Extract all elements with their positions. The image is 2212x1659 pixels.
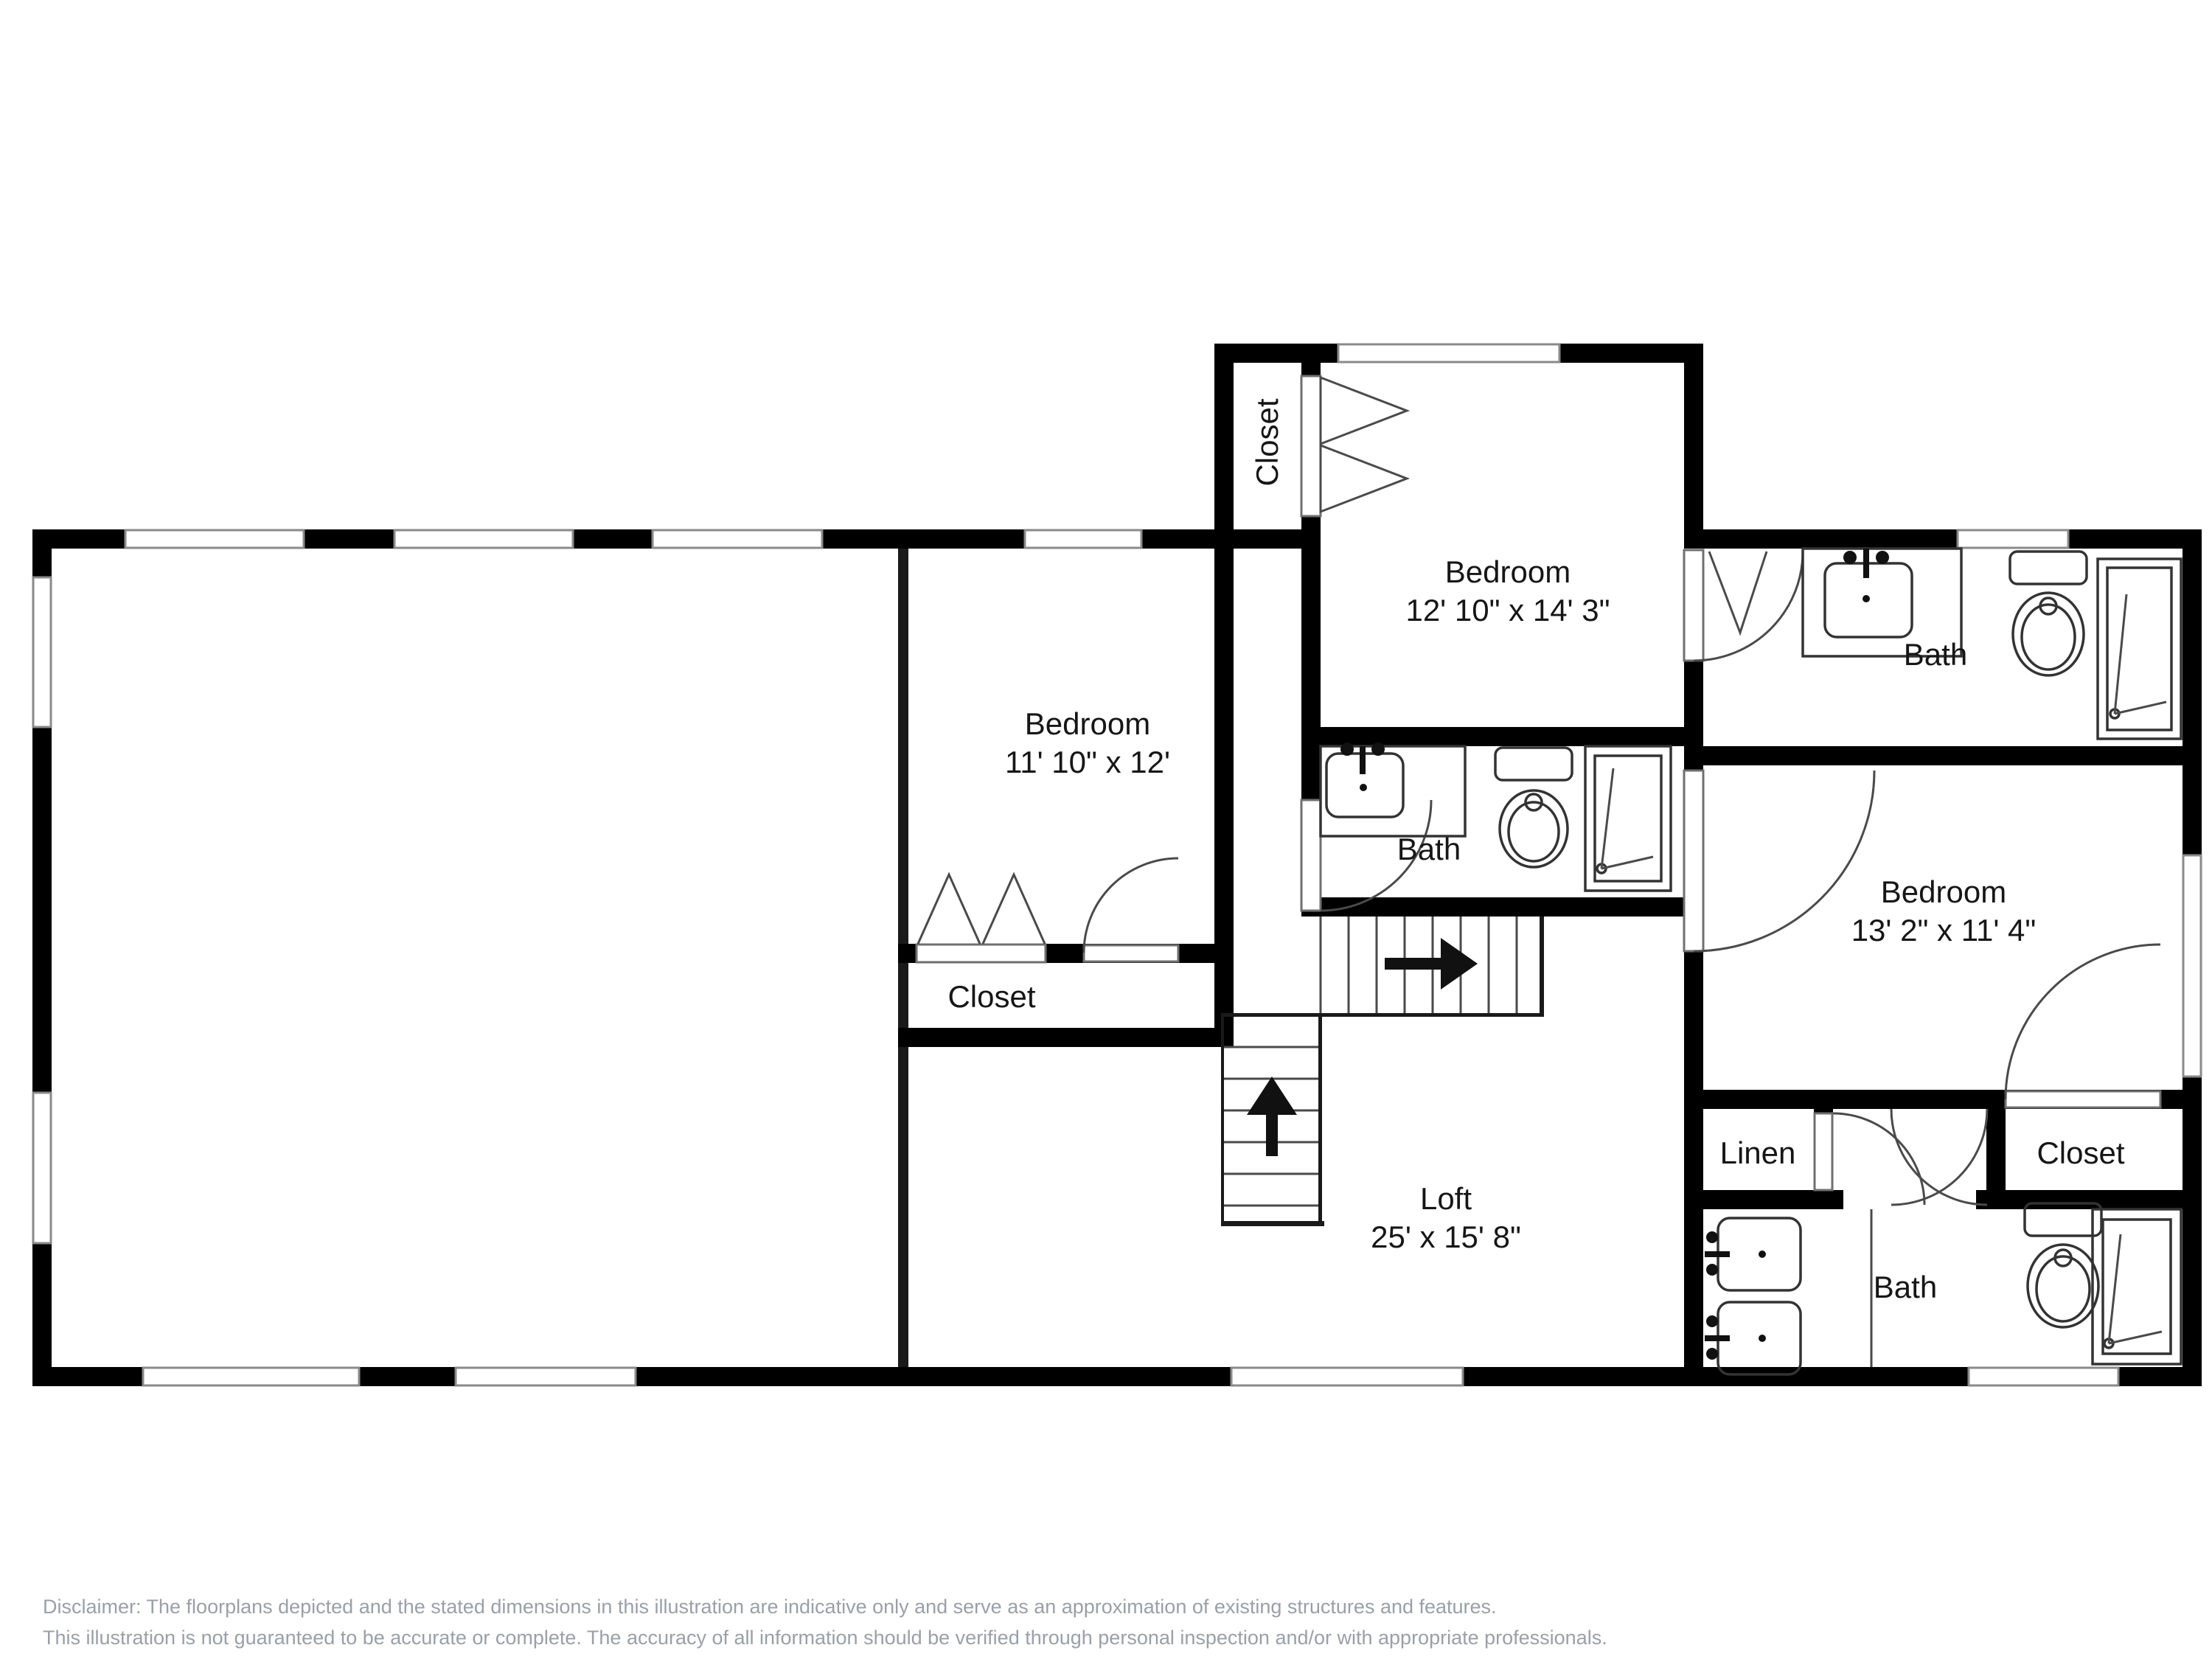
window-icon	[33, 577, 51, 727]
door-leaf-icon	[1684, 771, 1703, 951]
stairs-right-arrow-icon	[1385, 938, 1478, 990]
bifold-door-icon	[1321, 378, 1407, 444]
door-swing-icon	[1833, 1113, 1924, 1205]
door-leaf-icon	[1684, 550, 1703, 661]
door-swing-icon	[1694, 771, 1874, 951]
sink-icon	[1825, 549, 1912, 637]
disclaimer-line-1: Disclaimer: The floorplans depicted and …	[43, 1596, 1497, 1618]
door-leaf-icon	[2006, 1091, 2160, 1107]
window-icon	[394, 530, 573, 548]
window-icon	[456, 1368, 636, 1385]
door-leaf-icon	[1301, 800, 1321, 911]
door-swing-icon	[2006, 945, 2160, 1099]
room-label-bedroom-left: Bedroom	[1025, 706, 1150, 741]
toilet-icon	[2025, 1203, 2101, 1327]
bifold-door-icon	[1301, 376, 1321, 516]
toilet-icon	[1495, 748, 1572, 867]
window-icon	[143, 1368, 359, 1385]
walls	[32, 344, 2202, 1386]
window-icon	[1969, 1368, 2118, 1385]
window-icon	[1958, 530, 2068, 548]
bath-top-right-fixtures	[1803, 549, 2181, 739]
room-label-closet-lower-left: Closet	[947, 979, 1035, 1014]
window-icon	[1231, 1368, 1463, 1385]
disclaimer: Disclaimer: The floorplans depicted and …	[43, 1596, 1607, 1649]
room-dims-loft: 25' x 15' 8"	[1371, 1220, 1521, 1254]
window-icon	[33, 1093, 51, 1243]
room-label-bath-middle: Bath	[1397, 832, 1461, 866]
door-swing-icon	[1084, 858, 1178, 953]
room-label-bedroom-top: Bedroom	[1445, 554, 1571, 589]
vanity-counter-icon	[1321, 746, 1465, 836]
toilet-icon	[2010, 552, 2087, 675]
stairs-up-arrow-icon	[1247, 1077, 1297, 1156]
room-label-closet-top: Closet	[1250, 398, 1284, 486]
window-icon	[1025, 530, 1141, 548]
window-icon	[1338, 344, 1559, 362]
room-label-bedroom-right: Bedroom	[1881, 874, 2006, 909]
door-leaf-icon	[1815, 1113, 1832, 1190]
window-icon	[125, 530, 304, 548]
floorplan-canvas: Bedroom 12' 10" x 14' 3" Bedroom 11' 10"…	[0, 0, 2212, 1659]
bath-bottom-right-fixtures	[1705, 1203, 2181, 1374]
stairs	[1221, 917, 1544, 1226]
shower-icon	[1585, 746, 1671, 891]
door-swing-icon	[1891, 1109, 1987, 1205]
door-leaf-icon	[1084, 945, 1178, 961]
bifold-door-icon	[917, 945, 1046, 962]
room-label-closet-right: Closet	[2037, 1135, 2124, 1170]
sink-icon	[1705, 1302, 1801, 1374]
room-label-loft: Loft	[1420, 1181, 1472, 1216]
room-dims-bedroom-left: 11' 10" x 12'	[1005, 745, 1170, 779]
window-icon	[2183, 855, 2201, 1077]
bifold-door-icon	[1709, 552, 1767, 633]
room-label-linen: Linen	[1720, 1135, 1796, 1170]
bifold-door-icon	[1321, 445, 1407, 512]
room-dims-bedroom-top: 12' 10" x 14' 3"	[1405, 593, 1610, 627]
window-icon	[653, 530, 822, 548]
room-dims-bedroom-right: 13' 2" x 11' 4"	[1851, 913, 2037, 947]
bifold-door-icon	[983, 874, 1045, 944]
shower-icon	[2093, 1209, 2181, 1364]
bath-middle-fixtures	[1321, 742, 1671, 891]
disclaimer-line-2: This illustration is not guaranteed to b…	[43, 1627, 1607, 1649]
sink-icon	[1705, 1218, 1801, 1290]
shower-icon	[2098, 559, 2181, 739]
bifold-door-icon	[918, 874, 980, 944]
windows	[33, 344, 2201, 1385]
room-label-bath-bottom-right: Bath	[1874, 1270, 1937, 1304]
room-label-bath-top-right: Bath	[1904, 637, 1967, 672]
door-swing-icon	[1891, 1109, 1987, 1205]
sink-icon	[1326, 742, 1403, 817]
